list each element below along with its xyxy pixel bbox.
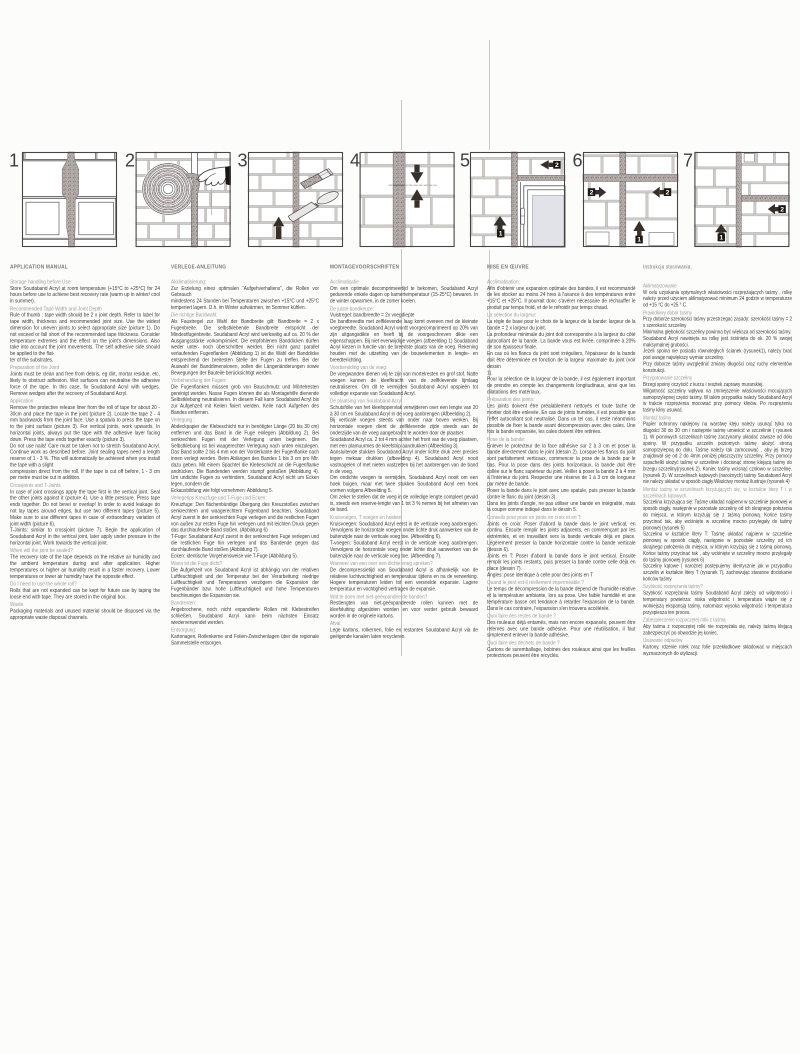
svg-text:1: 1 (719, 235, 723, 242)
svg-text:1: 1 (499, 231, 503, 238)
svg-text:2: 2 (555, 162, 559, 169)
svg-text:6: 6 (573, 150, 583, 170)
svg-text:5: 5 (460, 150, 470, 170)
svg-text:2: 2 (666, 189, 670, 196)
svg-text:2: 2 (125, 150, 135, 170)
svg-text:4: 4 (350, 150, 360, 170)
svg-text:1: 1 (9, 150, 19, 170)
svg-text:7: 7 (683, 150, 693, 170)
svg-text:2: 2 (590, 189, 594, 196)
svg-text:2: 2 (780, 206, 784, 213)
svg-text:1: 1 (637, 237, 641, 244)
svg-text:3: 3 (238, 150, 248, 170)
